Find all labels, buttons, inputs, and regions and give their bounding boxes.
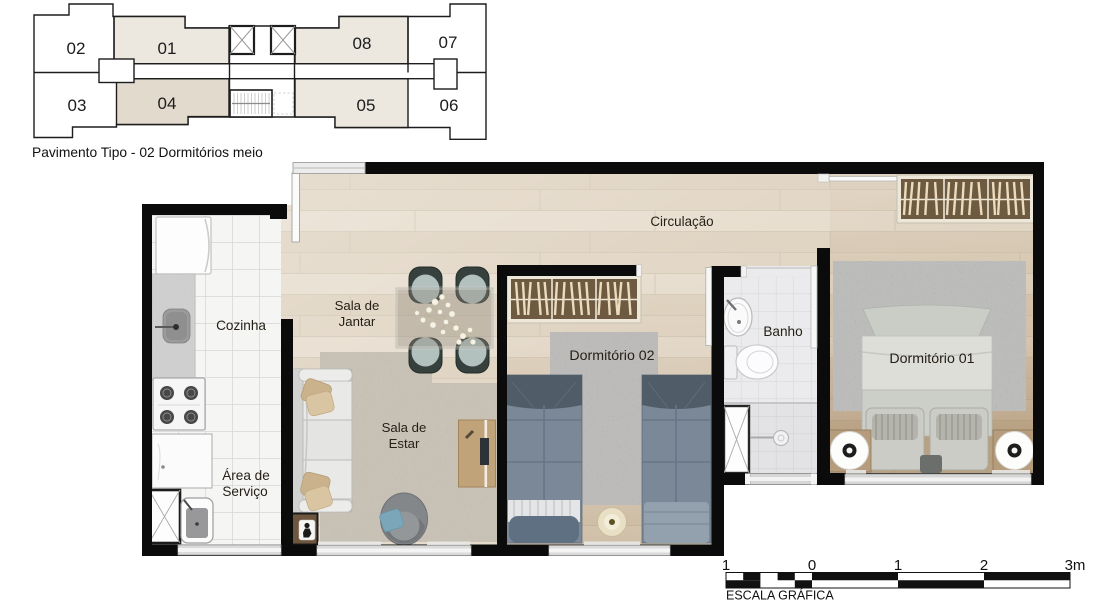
svg-text:ESCALA GRÁFICA: ESCALA GRÁFICA [726, 588, 834, 600]
svg-text:08: 08 [353, 34, 372, 53]
svg-text:05: 05 [357, 96, 376, 115]
svg-text:3m: 3m [1065, 557, 1086, 574]
svg-text:Serviço: Serviço [222, 484, 267, 499]
svg-text:02: 02 [67, 39, 86, 58]
svg-text:04: 04 [158, 94, 177, 113]
svg-text:Estar: Estar [389, 436, 420, 451]
svg-text:Dormitório 01: Dormitório 01 [889, 351, 974, 367]
svg-text:01: 01 [158, 39, 177, 58]
svg-text:Jantar: Jantar [339, 314, 376, 329]
svg-text:Pavimento Tipo - 02 Dormitório: Pavimento Tipo - 02 Dormitórios meio [32, 145, 263, 160]
svg-text:Cozinha: Cozinha [216, 318, 266, 333]
svg-text:2: 2 [980, 557, 988, 574]
svg-text:07: 07 [439, 33, 458, 52]
svg-text:03: 03 [68, 96, 87, 115]
svg-text:1: 1 [894, 557, 902, 574]
svg-text:Área de: Área de [222, 468, 270, 483]
svg-text:0: 0 [808, 557, 816, 574]
svg-text:Sala de: Sala de [335, 298, 380, 313]
svg-text:Sala de: Sala de [382, 420, 427, 435]
svg-text:Dormitório 02: Dormitório 02 [569, 348, 654, 364]
svg-text:Circulação: Circulação [650, 214, 713, 229]
svg-text:1: 1 [722, 557, 730, 574]
svg-text:Banho: Banho [763, 324, 802, 339]
svg-text:06: 06 [440, 96, 459, 115]
